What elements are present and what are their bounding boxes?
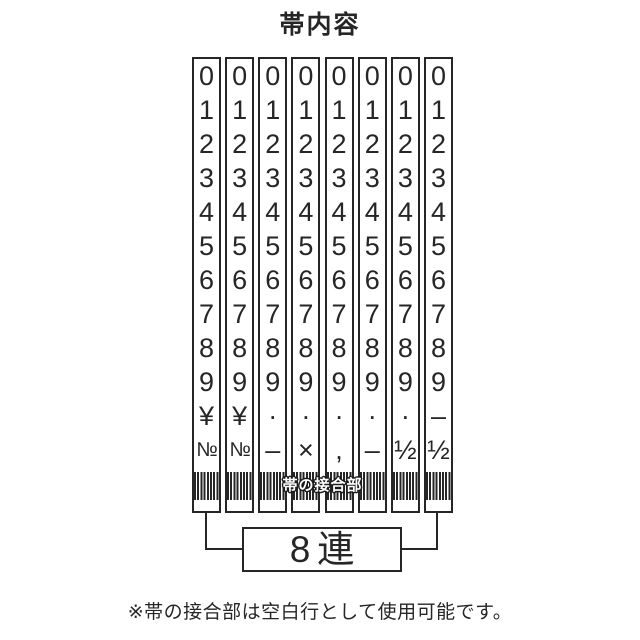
band-column-4: 0 1 2 3 4 5 6 7 8 9 · × (291, 57, 320, 513)
band-cell: 7 (293, 297, 318, 331)
band-joint-label: 帯の接合部 (282, 474, 362, 495)
band-cell: 6 (327, 263, 352, 297)
band-joint-label-wrap: 帯の接合部 (192, 469, 453, 499)
band-column-5: 0 1 2 3 4 5 6 7 8 9 · , (325, 57, 354, 513)
band-cell: 4 (227, 195, 252, 229)
band-count-label: 8連 (283, 531, 362, 568)
band-cell: 5 (227, 229, 252, 263)
band-cell: 8 (227, 331, 252, 365)
band-table: 0 1 2 3 4 5 6 7 8 9 ¥ № 0 1 2 3 4 5 6 7 … (192, 57, 453, 513)
band-cell: 7 (393, 297, 418, 331)
bracket-line-left-vertical (205, 512, 207, 550)
band-cell: 1 (426, 93, 451, 127)
band-cell: 2 (327, 127, 352, 161)
band-column-6: 0 1 2 3 4 5 6 7 8 9 · – (358, 57, 387, 513)
band-cell: 9 (360, 365, 385, 399)
band-cell: 1 (393, 93, 418, 127)
band-cell: 6 (393, 263, 418, 297)
band-cell: 5 (194, 229, 219, 263)
band-cell: 1 (194, 93, 219, 127)
band-cell: 5 (260, 229, 285, 263)
band-cell: · (360, 399, 385, 433)
band-cell: 8 (360, 331, 385, 365)
band-cell: 0 (327, 59, 352, 93)
band-cell: 3 (393, 161, 418, 195)
band-cell: · (260, 399, 285, 433)
band-cell: – (260, 433, 285, 467)
band-cell: 0 (194, 59, 219, 93)
band-cell: 3 (194, 161, 219, 195)
band-cell: – (360, 433, 385, 467)
band-cell: 0 (227, 59, 252, 93)
band-cell: 6 (360, 263, 385, 297)
band-cell: 8 (393, 331, 418, 365)
band-cell: 4 (426, 195, 451, 229)
band-cell: 2 (426, 127, 451, 161)
band-cell: 5 (426, 229, 451, 263)
bracket-line-right-horizontal (400, 548, 438, 550)
band-cell: 9 (293, 365, 318, 399)
band-column-3: 0 1 2 3 4 5 6 7 8 9 · – (258, 57, 287, 513)
band-cell: 1 (360, 93, 385, 127)
band-cell: · (393, 399, 418, 433)
band-cell: · (293, 399, 318, 433)
band-count-box: 8連 (242, 527, 402, 572)
band-cell: 5 (327, 229, 352, 263)
band-cell: ½ (393, 433, 418, 467)
band-cell: 4 (293, 195, 318, 229)
band-cell: 9 (227, 365, 252, 399)
band-cell: 7 (194, 297, 219, 331)
band-cell: 6 (194, 263, 219, 297)
band-cell: 3 (260, 161, 285, 195)
band-cell: 0 (426, 59, 451, 93)
band-cell: 7 (227, 297, 252, 331)
band-cell: 8 (260, 331, 285, 365)
band-cell: 4 (260, 195, 285, 229)
band-cell: 5 (293, 229, 318, 263)
band-cell: 3 (227, 161, 252, 195)
band-cell: 7 (360, 297, 385, 331)
band-cell: 1 (227, 93, 252, 127)
band-cell: 2 (360, 127, 385, 161)
band-cell: 2 (393, 127, 418, 161)
band-cell: 7 (426, 297, 451, 331)
band-cell: 0 (360, 59, 385, 93)
band-cell: № (227, 433, 252, 467)
band-cell: 9 (426, 365, 451, 399)
band-cell: 8 (327, 331, 352, 365)
band-cell: 9 (393, 365, 418, 399)
band-cell: 4 (360, 195, 385, 229)
band-cell: – (426, 399, 451, 433)
band-cell: 6 (426, 263, 451, 297)
band-cell: 5 (393, 229, 418, 263)
footnote: ※帯の接合部は空白行として使用可能です。 (0, 597, 640, 624)
band-cell: 4 (194, 195, 219, 229)
band-cell: 4 (327, 195, 352, 229)
band-cell: 2 (260, 127, 285, 161)
band-cell: 1 (260, 93, 285, 127)
band-cell: 8 (293, 331, 318, 365)
band-cell: 3 (293, 161, 318, 195)
band-cell: ¥ (194, 399, 219, 433)
band-cell: , (327, 433, 352, 467)
band-cell: 2 (194, 127, 219, 161)
band-cell: 0 (393, 59, 418, 93)
bracket-line-right-vertical (436, 512, 438, 550)
band-cell: 1 (327, 93, 352, 127)
band-cell: 7 (260, 297, 285, 331)
band-cell: 3 (426, 161, 451, 195)
band-cell: 0 (293, 59, 318, 93)
band-cell: 2 (293, 127, 318, 161)
band-cell: ¥ (227, 399, 252, 433)
band-cell: 5 (360, 229, 385, 263)
band-cell: 9 (260, 365, 285, 399)
band-cell: ½ (426, 433, 451, 467)
band-cell: 3 (327, 161, 352, 195)
band-cell: 0 (260, 59, 285, 93)
band-cell: 4 (393, 195, 418, 229)
band-cell: 6 (293, 263, 318, 297)
band-cell: 7 (327, 297, 352, 331)
band-column-8: 0 1 2 3 4 5 6 7 8 9 – ½ (424, 57, 453, 513)
band-cell: · (327, 399, 352, 433)
band-cell: 1 (293, 93, 318, 127)
band-column-7: 0 1 2 3 4 5 6 7 8 9 · ½ (391, 57, 420, 513)
band-cell: 9 (194, 365, 219, 399)
band-cell: 8 (194, 331, 219, 365)
band-cell: 2 (227, 127, 252, 161)
stamp-band-diagram: 帯内容 0 1 2 3 4 5 6 7 8 9 ¥ № 0 1 2 3 4 5 … (0, 0, 640, 640)
band-column-2: 0 1 2 3 4 5 6 7 8 9 ¥ № (225, 57, 254, 513)
bracket-line-left-horizontal (205, 548, 244, 550)
band-column-1: 0 1 2 3 4 5 6 7 8 9 ¥ № (192, 57, 221, 513)
band-cell: № (194, 433, 219, 467)
page-title: 帯内容 (0, 5, 640, 41)
band-cell: 3 (360, 161, 385, 195)
band-cell: 6 (227, 263, 252, 297)
band-cell: 6 (260, 263, 285, 297)
band-cell: × (293, 433, 318, 467)
band-cell: 8 (426, 331, 451, 365)
band-cell: 9 (327, 365, 352, 399)
